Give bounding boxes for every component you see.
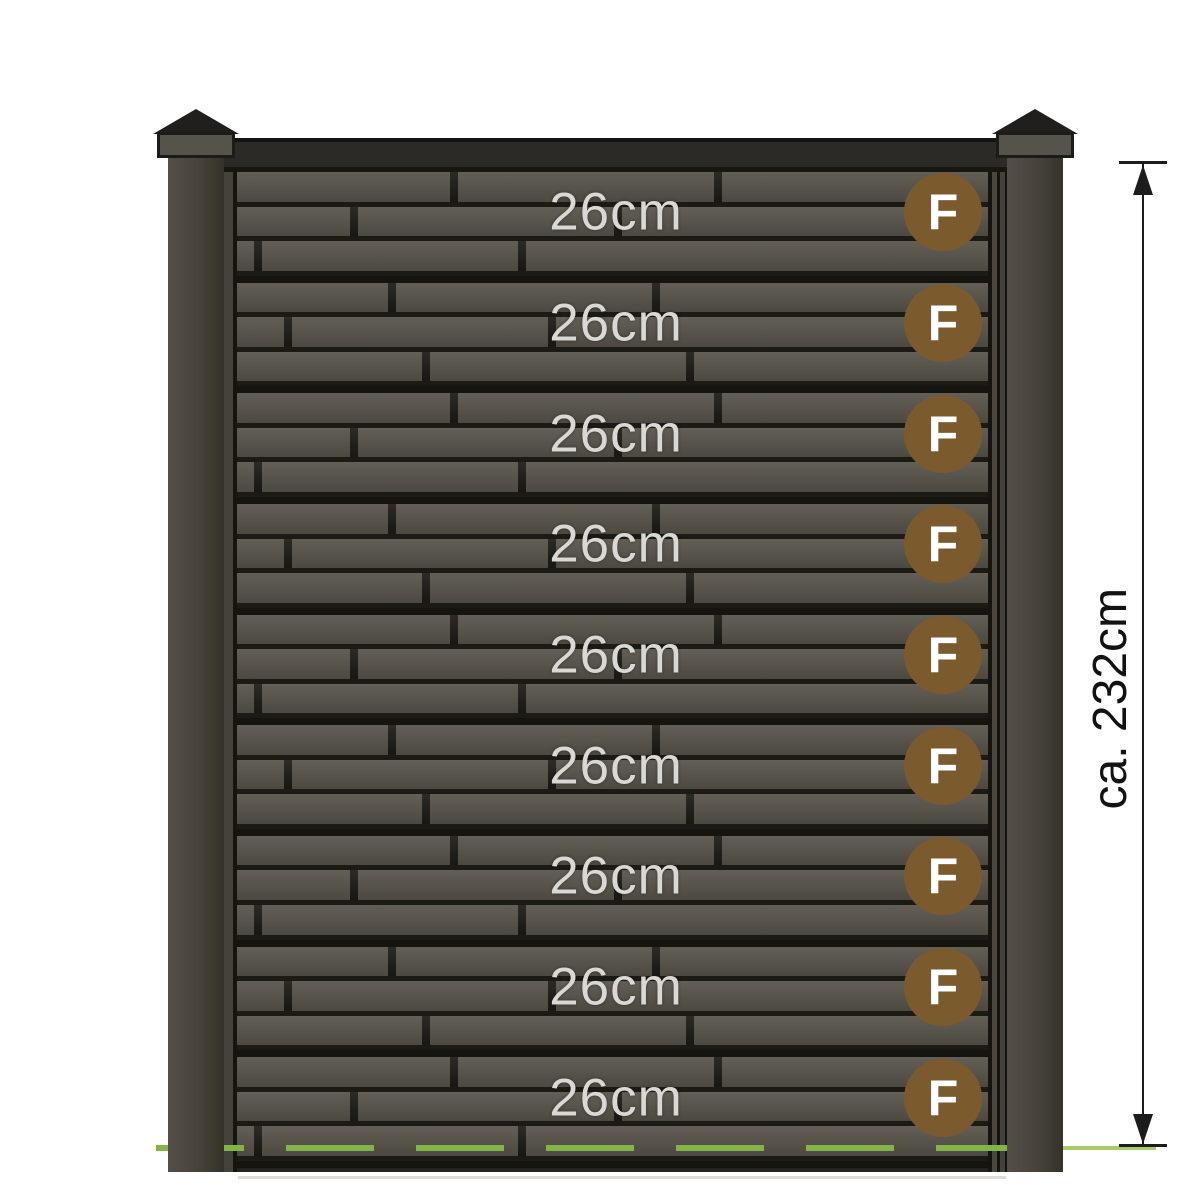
dimension-bottom-cap [1119, 1144, 1167, 1147]
fence-row: 26cm F [224, 283, 1008, 394]
left-post-cap-icon [153, 109, 239, 134]
board-course [224, 539, 1008, 574]
board-course [224, 283, 1008, 318]
board-course [224, 573, 1008, 608]
f-badge: F [904, 173, 982, 251]
fence-row: 26cm F [224, 1057, 1008, 1168]
ground-shadow-line [238, 1176, 1006, 1179]
board-course [224, 1092, 1008, 1127]
board-course [224, 1126, 1008, 1161]
board-course [224, 462, 1008, 497]
f-badge: F [904, 395, 982, 473]
board-course [224, 905, 1008, 940]
ground-line [156, 1145, 1156, 1151]
ground-line-dashes [156, 1145, 1010, 1151]
f-badge: F [904, 284, 982, 362]
total-height-label: ca. 232cm [1083, 588, 1138, 809]
board-course [224, 794, 1008, 829]
board-course [224, 207, 1008, 242]
fence-dimension-diagram: 26cm F 26cm F 26cm F 26cm F [0, 0, 1200, 1200]
panel-right-frame [988, 172, 1008, 1172]
fence-row: 26cm F [224, 725, 1008, 836]
f-badge: F [904, 616, 982, 694]
board-course [224, 428, 1008, 463]
dimension-line [1142, 163, 1144, 1147]
fence-row: 26cm F [224, 504, 1008, 615]
fence-row: 26cm F [224, 615, 1008, 726]
panel-top-rail [224, 138, 1008, 172]
board-course [224, 684, 1008, 719]
fence-row: 26cm F [224, 393, 1008, 504]
right-post-cap-icon [992, 109, 1078, 134]
board-course [224, 241, 1008, 276]
dimension-top-cap [1119, 161, 1167, 164]
board-course [224, 504, 1008, 539]
f-badge: F [904, 837, 982, 915]
right-post-cap-base [996, 132, 1074, 158]
panel-bottom-rail [224, 1168, 1008, 1172]
panel-left-frame [224, 172, 237, 1172]
f-badge: F [904, 727, 982, 805]
panel-rows: 26cm F 26cm F 26cm F 26cm F [224, 172, 1008, 1168]
board-course [224, 947, 1008, 982]
board-course [224, 760, 1008, 795]
board-course [224, 317, 1008, 352]
board-course [224, 1016, 1008, 1051]
f-badge: F [904, 505, 982, 583]
board-course [224, 352, 1008, 387]
left-post [168, 155, 224, 1172]
board-course [224, 172, 1008, 207]
fence-panel: 26cm F 26cm F 26cm F 26cm F [224, 138, 1008, 1172]
fence-row: 26cm F [224, 836, 1008, 947]
board-course [224, 981, 1008, 1016]
board-course [224, 1057, 1008, 1092]
dimension-arrow-down-icon [1133, 1114, 1153, 1144]
board-course [224, 393, 1008, 428]
right-post [1007, 155, 1063, 1172]
dimension-arrow-up-icon [1133, 165, 1153, 195]
left-post-cap-base [157, 132, 235, 158]
board-course [224, 836, 1008, 871]
board-course [224, 725, 1008, 760]
fence-row: 26cm F [224, 947, 1008, 1058]
board-course [224, 870, 1008, 905]
board-course [224, 649, 1008, 684]
fence-row: 26cm F [224, 172, 1008, 283]
f-badge: F [904, 948, 982, 1026]
board-course [224, 615, 1008, 650]
f-badge: F [904, 1059, 982, 1137]
